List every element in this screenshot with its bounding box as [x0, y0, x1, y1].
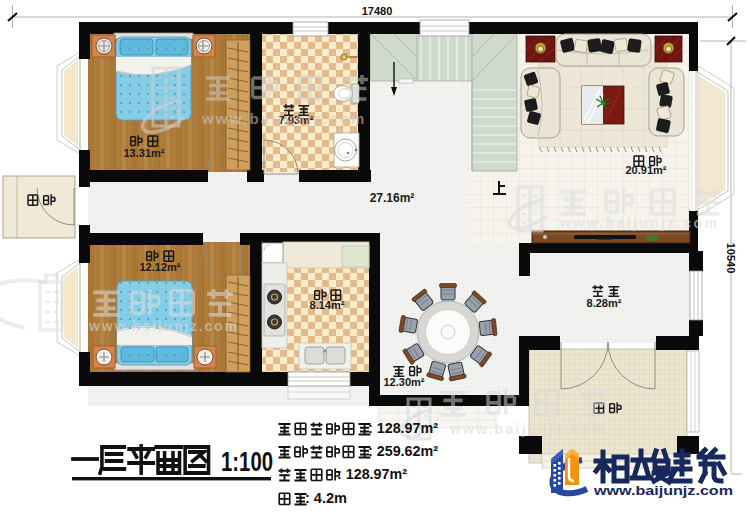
svg-text:1:100: 1:100 [221, 446, 273, 477]
svg-text:12.30m²: 12.30m² [384, 376, 425, 388]
svg-text:www.baijunjz.com: www.baijunjz.com [559, 215, 719, 231]
svg-text:www.baijunjz.com: www.baijunjz.com [201, 110, 367, 127]
svg-text:27.16m²: 27.16m² [370, 191, 415, 205]
svg-text:: 128.97m²: : 128.97m² [337, 466, 407, 482]
svg-text:: 259.62m²: : 259.62m² [368, 443, 438, 459]
svg-text:www.baijunjz.com: www.baijunjz.com [593, 483, 733, 498]
svg-text:8.28m²: 8.28m² [587, 297, 622, 309]
svg-text:www.baijunjz.com: www.baijunjz.com [449, 421, 606, 437]
svg-text:12.12m²: 12.12m² [140, 261, 181, 273]
svg-text:13.31m²: 13.31m² [124, 147, 165, 159]
svg-text:17480: 17480 [362, 5, 393, 17]
svg-text:8.14m²: 8.14m² [310, 299, 345, 311]
svg-text:www.baijunjz.com: www.baijunjz.com [88, 318, 239, 334]
svg-text:10540: 10540 [725, 243, 737, 274]
svg-text:: 128.97m²: : 128.97m² [368, 420, 438, 436]
svg-text:: 4.2m: : 4.2m [305, 490, 347, 506]
svg-text:20.91m²: 20.91m² [626, 164, 667, 176]
